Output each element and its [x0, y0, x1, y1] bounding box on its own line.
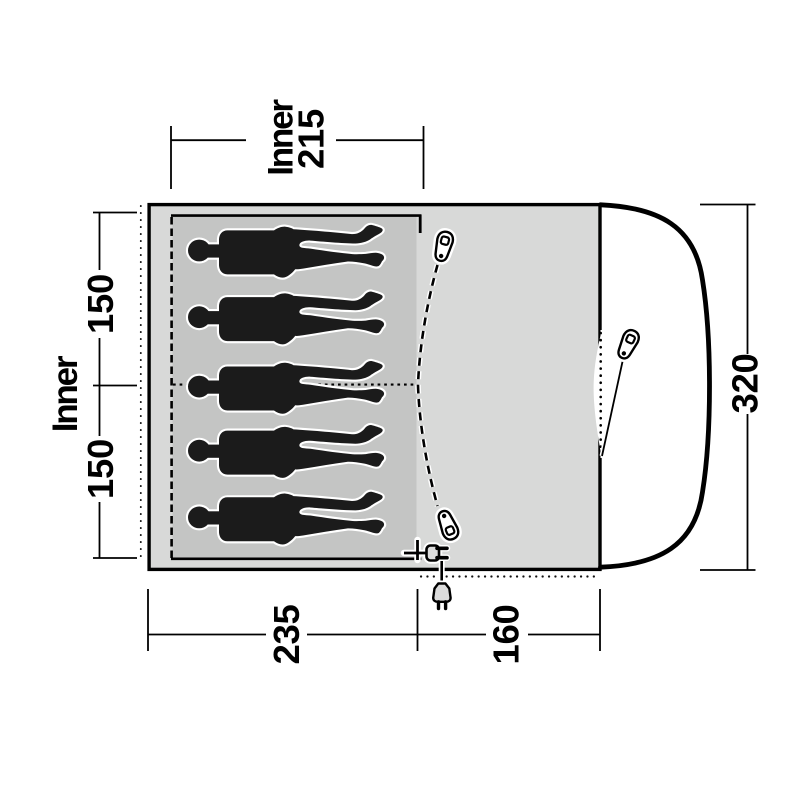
svg-text:320: 320	[725, 354, 766, 414]
svg-text:235: 235	[266, 605, 307, 665]
svg-text:150: 150	[80, 274, 121, 334]
svg-text:Inner: Inner	[46, 355, 85, 432]
svg-text:150: 150	[80, 439, 121, 499]
svg-text:215: 215	[291, 109, 332, 169]
svg-text:160: 160	[486, 605, 527, 665]
